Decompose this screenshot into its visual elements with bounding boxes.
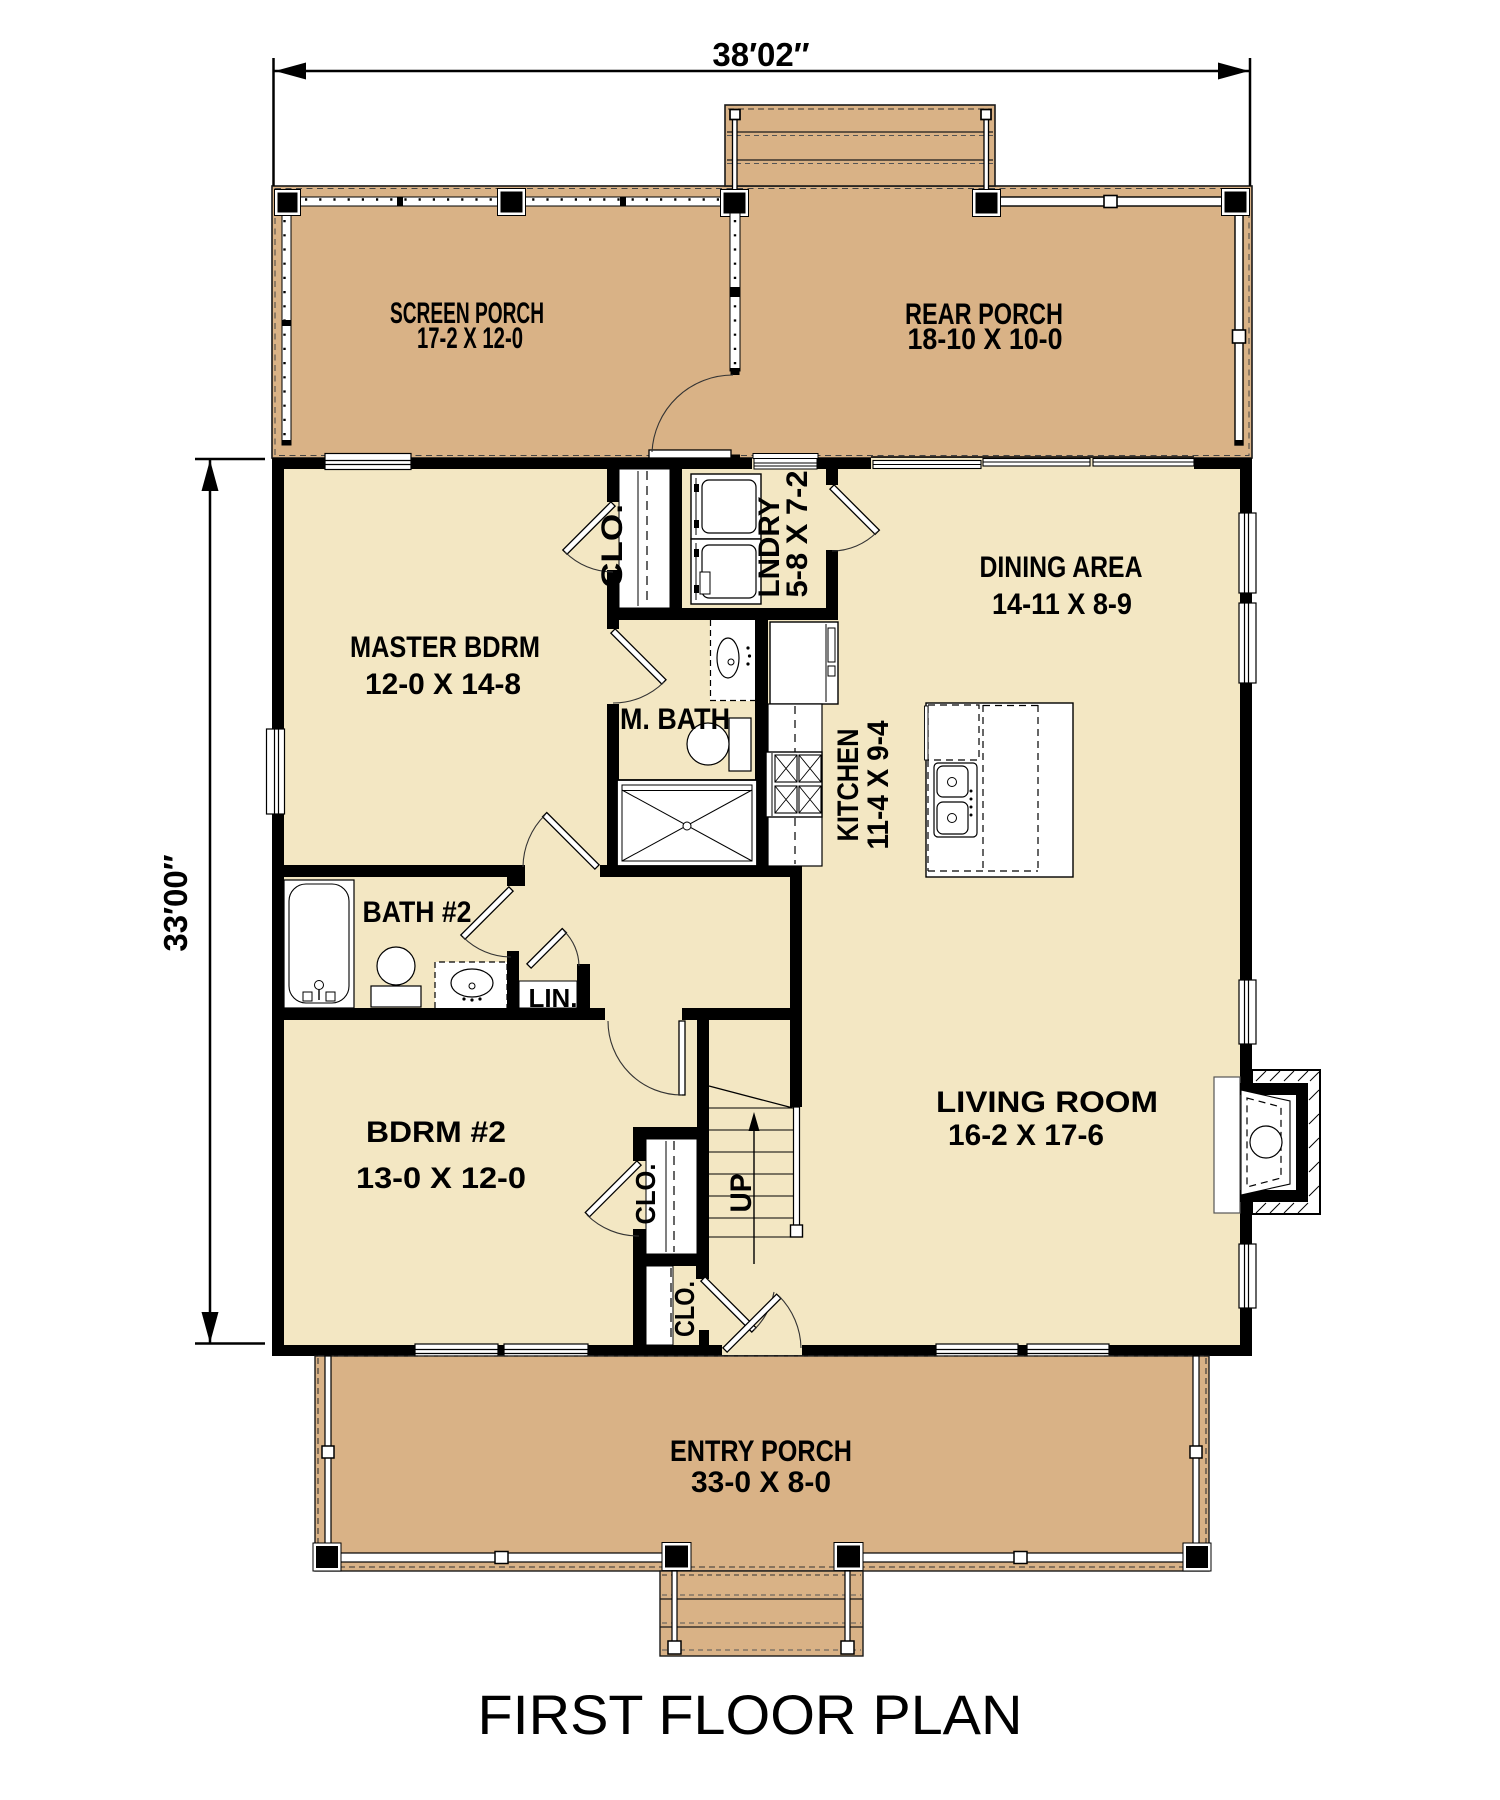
- svg-text:12-0 X 14-8: 12-0 X 14-8: [365, 668, 521, 701]
- svg-text:DINING AREA: DINING AREA: [980, 551, 1143, 584]
- svg-text:CLO.: CLO.: [630, 1164, 661, 1225]
- svg-text:13-0 X 12-0: 13-0 X 12-0: [356, 1162, 526, 1195]
- svg-text:18-10 X 10-0: 18-10 X 10-0: [908, 323, 1063, 356]
- svg-text:33′00″: 33′00″: [157, 854, 194, 951]
- svg-text:BATH #2: BATH #2: [363, 896, 472, 929]
- svg-text:LIVING ROOM: LIVING ROOM: [936, 1086, 1158, 1119]
- svg-text:CLO.: CLO.: [596, 504, 629, 588]
- svg-text:5-8 X 7-2: 5-8 X 7-2: [781, 471, 814, 598]
- svg-text:33-0 X 8-0: 33-0 X 8-0: [691, 1466, 831, 1499]
- svg-text:16-2 X 17-6: 16-2 X 17-6: [948, 1119, 1104, 1152]
- svg-text:UP: UP: [725, 1174, 758, 1213]
- svg-text:LIN.: LIN.: [529, 983, 578, 1013]
- svg-text:M. BATH: M. BATH: [620, 703, 730, 736]
- svg-text:ENTRY PORCH: ENTRY PORCH: [670, 1435, 852, 1468]
- svg-text:38′02″: 38′02″: [712, 36, 809, 73]
- svg-text:FIRST FLOOR PLAN: FIRST FLOOR PLAN: [478, 1683, 1023, 1746]
- svg-text:BDRM #2: BDRM #2: [366, 1116, 506, 1149]
- svg-text:11-4 X 9-4: 11-4 X 9-4: [862, 720, 895, 849]
- svg-text:17-2 X 12-0: 17-2 X 12-0: [417, 322, 523, 355]
- svg-text:14-11 X 8-9: 14-11 X 8-9: [992, 588, 1132, 621]
- svg-text:KITCHEN: KITCHEN: [832, 729, 865, 842]
- svg-text:MASTER BDRM: MASTER BDRM: [350, 631, 540, 664]
- svg-text:CLO.: CLO.: [669, 1281, 700, 1337]
